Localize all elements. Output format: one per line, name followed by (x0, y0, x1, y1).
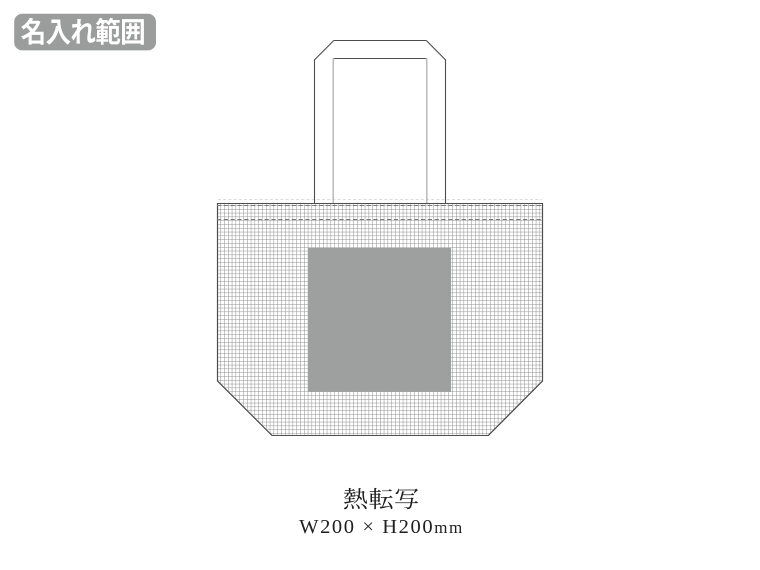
svg-text:W200 × H200mm: W200 × H200mm (299, 516, 464, 538)
